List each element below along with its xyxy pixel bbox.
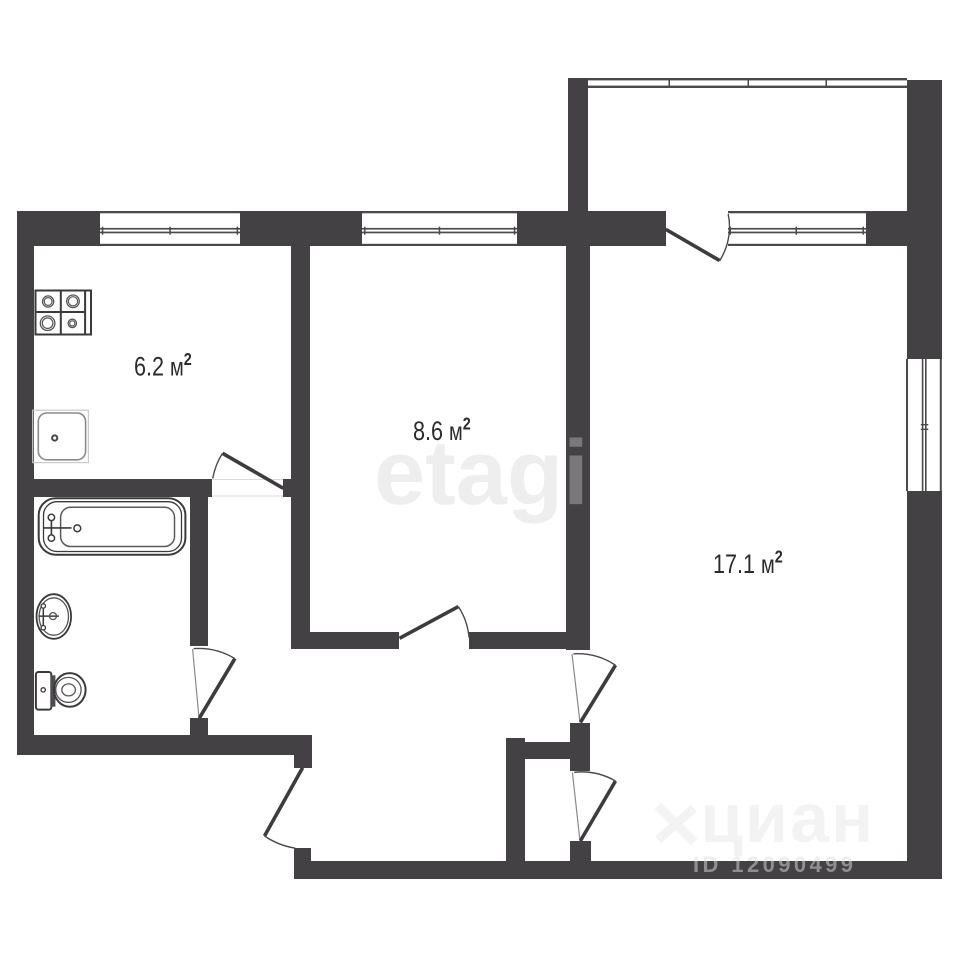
- svg-text:циан: циан: [700, 779, 875, 857]
- svg-text:etagi: etagi: [374, 422, 589, 524]
- svg-text:17.1 м2: 17.1 м2: [713, 547, 783, 580]
- svg-text:6.2 м2: 6.2 м2: [134, 350, 192, 383]
- svg-text:ID 12090499: ID 12090499: [693, 852, 856, 877]
